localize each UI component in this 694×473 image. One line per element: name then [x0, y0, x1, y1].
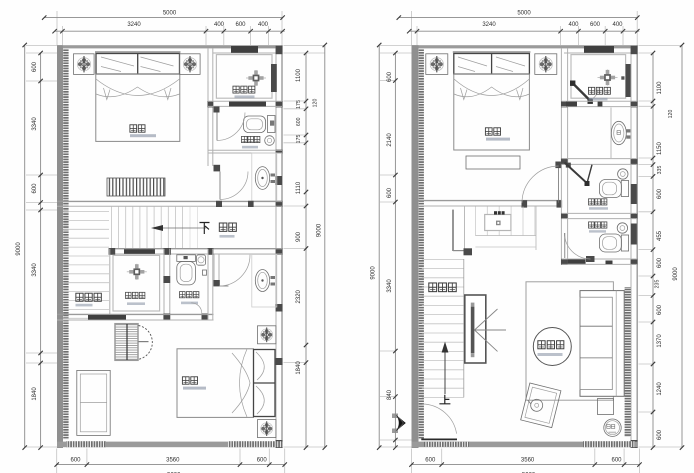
svg-text:3340: 3340	[387, 279, 393, 293]
svg-text:9000: 9000	[371, 266, 377, 280]
svg-text:1840: 1840	[32, 387, 38, 401]
svg-text:600: 600	[657, 304, 663, 315]
svg-text:3340: 3340	[32, 117, 38, 131]
svg-text:1240: 1240	[657, 382, 663, 396]
svg-text:600: 600	[611, 457, 622, 463]
svg-text:900: 900	[296, 231, 302, 242]
svg-text:235: 235	[654, 280, 660, 289]
svg-text:3340: 3340	[32, 263, 38, 277]
svg-text:600: 600	[235, 22, 246, 28]
svg-text:400: 400	[214, 22, 225, 28]
svg-text:600: 600	[387, 71, 393, 82]
svg-text:600: 600	[590, 22, 601, 28]
svg-text:600: 600	[657, 429, 663, 440]
svg-text:600: 600	[296, 117, 302, 126]
svg-text:175: 175	[296, 135, 302, 144]
svg-text:2140: 2140	[387, 133, 393, 147]
svg-text:600: 600	[425, 457, 436, 463]
svg-text:455: 455	[657, 230, 663, 241]
svg-text:1370: 1370	[657, 334, 663, 348]
svg-text:5000: 5000	[517, 11, 531, 17]
svg-text:600: 600	[257, 457, 268, 463]
svg-text:9000: 9000	[16, 242, 22, 256]
svg-text:120: 120	[668, 110, 674, 119]
svg-text:400: 400	[258, 22, 269, 28]
svg-text:3240: 3240	[127, 22, 141, 28]
svg-text:840: 840	[387, 389, 393, 400]
svg-text:600: 600	[387, 187, 393, 198]
svg-text:400: 400	[568, 22, 579, 28]
svg-text:600: 600	[70, 457, 81, 463]
svg-text:600: 600	[32, 183, 38, 194]
svg-text:3560: 3560	[166, 457, 180, 463]
svg-text:9000: 9000	[673, 267, 679, 281]
svg-text:120: 120	[313, 99, 319, 108]
svg-text:600: 600	[32, 61, 38, 72]
svg-text:600: 600	[657, 188, 663, 199]
svg-text:600: 600	[657, 257, 663, 268]
svg-text:1100: 1100	[296, 68, 302, 82]
svg-text:1840: 1840	[296, 361, 302, 375]
svg-text:9000: 9000	[316, 223, 322, 237]
svg-text:1100: 1100	[657, 81, 663, 95]
svg-text:2320: 2320	[296, 289, 302, 303]
svg-text:3560: 3560	[521, 457, 535, 463]
svg-text:3240: 3240	[482, 22, 496, 28]
svg-text:400: 400	[612, 22, 623, 28]
svg-text:1110: 1110	[296, 181, 302, 194]
svg-text:335: 335	[657, 166, 663, 175]
svg-text:1150: 1150	[657, 141, 663, 155]
svg-text:5000: 5000	[163, 11, 177, 17]
svg-text:175: 175	[296, 100, 302, 109]
